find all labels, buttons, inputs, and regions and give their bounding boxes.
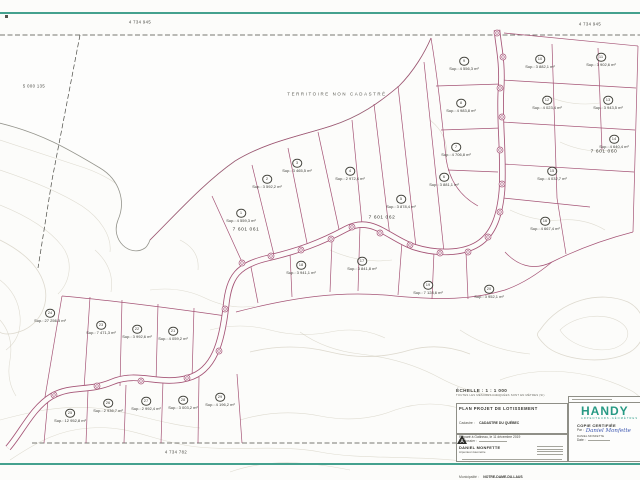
surveyor-signature: Daniel Monfette: [586, 428, 631, 434]
station-marker: [349, 224, 355, 230]
station-marker: [497, 85, 503, 91]
lake-water: [0, 36, 431, 251]
scanned-cadastral-plan-sheet: TERRITOIRE NON CADASTRÉ 1Sup.: 4 559,3 m…: [0, 0, 640, 480]
plan-info-box: PLAN PROJET DE LOTISSEMENT Cadastre : CA…: [456, 403, 568, 434]
sheet-border-top: [0, 12, 640, 14]
surveyor-title: Arpenteur-Géomètre: [459, 450, 500, 454]
minute-line-illegible: [462, 459, 562, 460]
firm-logo: HANDY: [581, 405, 640, 417]
station-marker: [239, 260, 245, 266]
station-marker: [500, 54, 506, 60]
preparation-box: Préparé à Gatineau, le 11 décembre 2019 …: [456, 434, 568, 462]
station-marker: [497, 209, 503, 215]
municipality-label: Municipalité :: [459, 475, 479, 479]
cadastre-label: Cadastre :: [459, 421, 475, 425]
firm-address-illegible: [537, 445, 563, 457]
station-marker: [437, 250, 443, 256]
station-marker: [494, 30, 500, 36]
station-marker: [377, 230, 383, 236]
station-marker: [298, 247, 304, 253]
station-marker: [222, 306, 228, 312]
date-value-illegible: [588, 440, 610, 441]
station-marker: [216, 348, 222, 354]
station-marker: [328, 236, 334, 242]
station-marker: [51, 392, 57, 398]
station-marker: [499, 114, 505, 120]
station-marker: [407, 242, 413, 248]
sheet-corner-mark: [5, 15, 8, 18]
station-marker: [485, 234, 491, 240]
station-marker: [94, 383, 100, 389]
station-marker: [497, 147, 503, 153]
par-label: Par :: [577, 428, 584, 432]
firm-certification-box: HANDY ARPENTEURS-GÉOMÈTRES COPIE CERTIFI…: [568, 396, 640, 462]
surveyor-name: DANIEL MONFETTE: [459, 445, 500, 450]
station-marker: [268, 253, 274, 259]
cadastre-value: CADASTRE DU QUÉBEC: [479, 421, 519, 425]
scale-note: TOUTES LES MESURES INDIQUÉES SONT EN MÈT…: [456, 393, 568, 397]
station-marker: [138, 378, 144, 384]
station-marker: [499, 181, 505, 187]
station-marker: [465, 249, 471, 255]
station-marker: [184, 375, 190, 381]
date-label: Date :: [577, 438, 586, 442]
municipality-value: NOTRE-DAME-DU-LAUS: [483, 475, 522, 479]
firm-logo-subtitle: ARPENTEURS-GÉOMÈTRES: [581, 417, 640, 420]
dossier-value-illegible: [479, 441, 507, 442]
